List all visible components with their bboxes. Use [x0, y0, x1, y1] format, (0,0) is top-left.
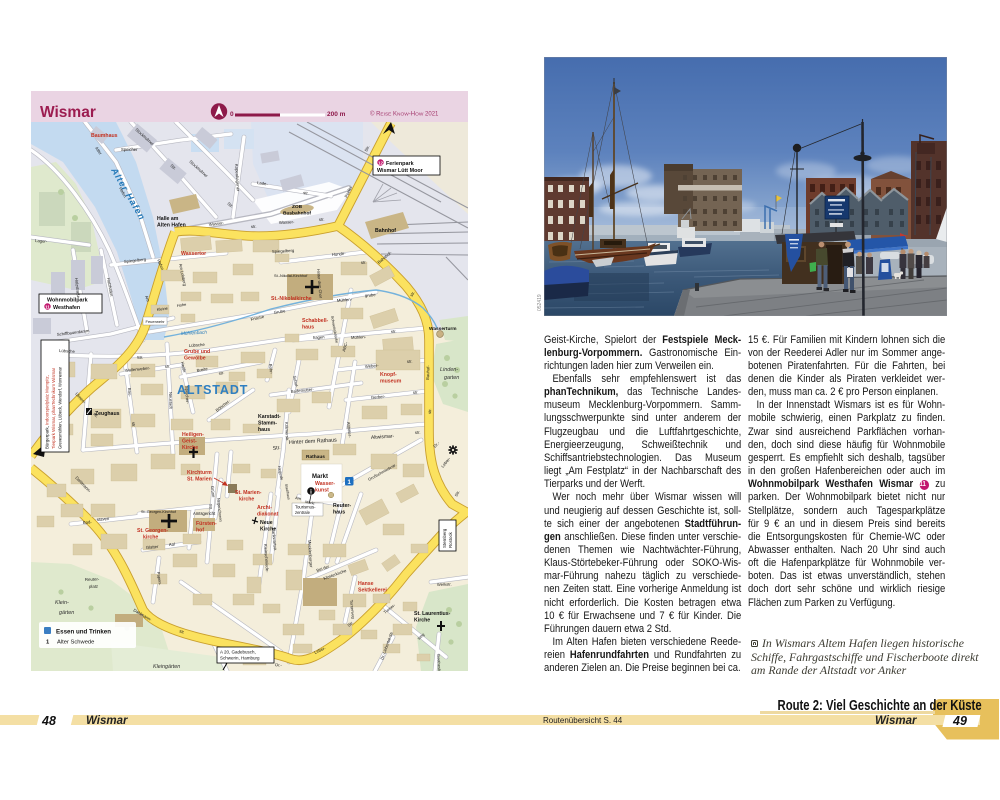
svg-text:Fürsten-: Fürsten- [196, 521, 217, 527]
svg-text:Wasser-: Wasser- [315, 481, 335, 487]
svg-text:haus: haus [302, 325, 314, 331]
svg-text:Kirche: Kirche [414, 618, 430, 624]
svg-text:kirche: kirche [143, 535, 158, 541]
svg-text:Geist-: Geist- [182, 439, 197, 445]
svg-text:hagen: hagen [313, 334, 326, 340]
svg-text:Bau-: Bau- [127, 388, 133, 398]
svg-text:Kirchturm: Kirchturm [187, 470, 212, 476]
svg-text:Ferienpark: Ferienpark [386, 161, 414, 167]
svg-text:Karstadt-: Karstadt- [258, 414, 281, 420]
svg-text:hof: hof [196, 528, 204, 534]
svg-text:Gewölbe: Gewölbe [184, 356, 206, 362]
svg-text:Neue: Neue [260, 520, 273, 526]
svg-text:Schwerin, Hamburg: Schwerin, Hamburg [220, 656, 260, 661]
svg-text:Heiligen-: Heiligen- [182, 432, 204, 438]
svg-text:St. Marien: St. Marien [187, 477, 212, 483]
svg-text:haus: haus [333, 510, 345, 516]
svg-text:Kleingärten: Kleingärten [153, 664, 180, 670]
svg-text:haus: haus [258, 427, 270, 433]
svg-text:str.: str. [391, 329, 397, 334]
svg-text:Krämerstr.: Krämerstr. [284, 422, 290, 442]
svg-text:Busbahnhof: Busbahnhof [283, 211, 311, 217]
svg-text:Lübsche: Lübsche [59, 348, 76, 354]
svg-text:Wohnmobilpark: Wohnmobilpark [47, 298, 88, 304]
svg-text:ZOB: ZOB [292, 204, 303, 210]
svg-text:Str.: Str. [137, 355, 144, 360]
svg-text:Markt: Markt [312, 474, 328, 480]
svg-text:diakonat: diakonat [257, 512, 279, 518]
svg-text:Halle am: Halle am [157, 216, 179, 222]
svg-text:Hanse: Hanse [358, 581, 374, 587]
svg-text:Sternberg: Sternberg [442, 528, 447, 548]
svg-text:str.: str. [415, 430, 421, 435]
svg-text:Knopf-: Knopf- [380, 372, 397, 378]
svg-text:Grevesmühlen, Lübeck, Wendorf,: Grevesmühlen, Lübeck, Wendorf, Wonnemar [58, 366, 63, 449]
svg-text:Str.: Str. [208, 504, 214, 511]
svg-text:str.: str. [319, 217, 325, 222]
svg-text:Bürgerpark, Indoorspielplatz M: Bürgerpark, Indoorspielplatz Mumpitz, [45, 375, 50, 449]
svg-text:St. Laurentius-: St. Laurentius- [414, 611, 451, 617]
svg-text:Lager-: Lager- [35, 238, 48, 244]
svg-text:str.: str. [218, 370, 224, 376]
svg-text:Linden-: Linden- [440, 367, 458, 373]
svg-text:Westhafen: Westhafen [53, 305, 80, 311]
svg-text:200 m: 200 m [327, 111, 346, 118]
svg-text:Str.: Str. [272, 445, 281, 452]
svg-text:Dr.-: Dr.- [275, 662, 283, 668]
svg-text:Archi-: Archi- [257, 505, 272, 511]
svg-text:A 20, Gadebusch,: A 20, Gadebusch, [220, 650, 256, 655]
svg-text:str.: str. [131, 422, 136, 428]
svg-text:Aal: Aal [169, 541, 176, 547]
svg-text:str.: str. [303, 190, 309, 196]
svg-text:Wismar Lütt Moor: Wismar Lütt Moor [377, 168, 424, 174]
svg-text:St. Georgen-: St. Georgen- [137, 528, 168, 534]
svg-text:Rathaus: Rathaus [306, 454, 325, 460]
svg-text:str.: str. [413, 390, 419, 395]
svg-text:Sektkellerei: Sektkellerei [358, 588, 387, 594]
svg-text:Schabbell-: Schabbell- [302, 318, 329, 324]
svg-text:str.: str. [361, 260, 367, 265]
svg-text:Speicher: Speicher [121, 147, 138, 152]
svg-text:grube: grube [365, 292, 377, 298]
svg-text:Feuerwehr: Feuerwehr [146, 319, 166, 324]
svg-text:Wasser-: Wasser- [279, 219, 295, 225]
svg-text:St. Marien-: St. Marien- [235, 490, 262, 496]
svg-text:Reuter-: Reuter- [85, 576, 100, 582]
svg-text:Klein-: Klein- [55, 600, 69, 606]
svg-text:Bad-: Bad- [83, 519, 93, 525]
svg-text:Bahnhof: Bahnhof [375, 228, 396, 234]
svg-text:Alter Schwede: Alter Schwede [57, 640, 94, 646]
svg-text:Essen und Trinken: Essen und Trinken [56, 629, 111, 636]
svg-text:St.-Georgen-Kirchhof: St.-Georgen-Kirchhof [141, 510, 177, 514]
svg-text:kunst: kunst [315, 488, 329, 494]
svg-text:Neustadt: Neustadt [168, 392, 174, 410]
svg-text:12: 12 [378, 160, 383, 165]
svg-text:zentrale: zentrale [295, 510, 311, 515]
svg-text:Reuter-: Reuter- [333, 503, 351, 509]
svg-text:St.-Nikolai-Kirchhof: St.-Nikolai-Kirchhof [274, 273, 308, 278]
svg-text:gärten: gärten [59, 610, 74, 616]
svg-text:Stamm-: Stamm- [258, 421, 277, 427]
svg-text:museum: museum [380, 379, 402, 385]
svg-text:Rostock: Rostock [448, 531, 453, 548]
svg-text:Tierpark Wismar, phanTechnikum: Tierpark Wismar, phanTechnikum Wismar [51, 367, 56, 449]
svg-text:str.: str. [427, 408, 432, 414]
svg-text:str.: str. [251, 224, 257, 229]
svg-text:Werkstr.: Werkstr. [437, 581, 452, 587]
svg-text:Wasserturm: Wasserturm [429, 326, 457, 332]
svg-text:Kirche: Kirche [182, 445, 198, 451]
svg-text:Amtsgericht: Amtsgericht [193, 511, 216, 516]
svg-text:str.: str. [407, 359, 413, 364]
svg-text:garten: garten [444, 375, 459, 381]
svg-text:Mühlen-: Mühlen- [351, 334, 367, 340]
svg-text:Baumhaus: Baumhaus [91, 133, 118, 139]
svg-text:kirche: kirche [239, 497, 254, 503]
svg-text:0: 0 [230, 111, 234, 118]
svg-text:Wassertor: Wassertor [181, 251, 206, 257]
svg-text:Grube und: Grube und [184, 349, 210, 355]
svg-text:Bauhof-: Bauhof- [425, 365, 431, 380]
svg-text:Alten Hafen: Alten Hafen [157, 223, 186, 229]
svg-text:© REISE KNOW-HOW 2021: © REISE KNOW-HOW 2021 [370, 111, 439, 118]
svg-text:St.-Nikolaikirche: St.-Nikolaikirche [271, 296, 312, 302]
svg-text:11: 11 [45, 304, 50, 309]
svg-text:str.: str. [165, 363, 171, 369]
svg-text:platz: platz [89, 584, 98, 589]
